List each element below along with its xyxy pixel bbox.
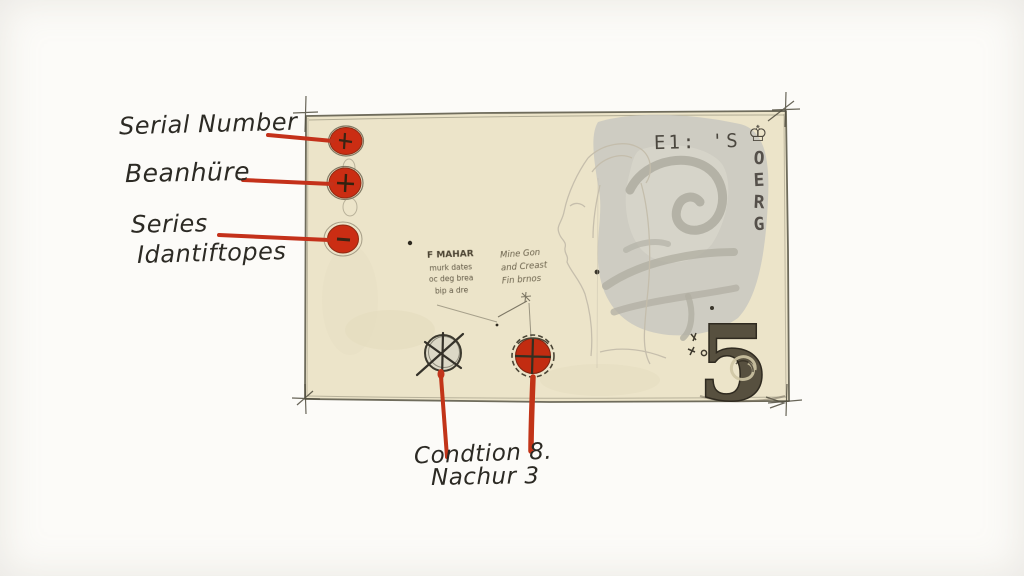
label-serial-number: Serial Number — [119, 108, 298, 141]
label-condition-line2: Nachur 3 — [431, 463, 540, 491]
vertical-letter: O — [745, 147, 772, 170]
label-series-line1: Series — [131, 209, 208, 238]
microtext-block-left: F MAHAR murk dates oc deg brea bip a dre — [412, 249, 490, 298]
label-signature: Beanhüre — [125, 157, 251, 188]
label-series-line2: Idantiftopes — [137, 237, 287, 269]
vertical-letter: R — [745, 191, 772, 214]
microtext-block-right: Mine Gon and Creast Fin brnos — [500, 246, 549, 288]
banknote-anatomy-sketch: 5 Serial Number Beanhüre Series Idantift… — [0, 0, 1024, 576]
vertical-letter: G — [745, 213, 772, 236]
note-header-text: E1: 'S — [654, 130, 741, 154]
sketch-artwork: 5 — [0, 0, 1024, 576]
vertical-euro-letters: O E R G — [746, 148, 772, 236]
vertical-letter: E — [745, 169, 772, 192]
crown-icon: ♔ — [748, 122, 768, 147]
